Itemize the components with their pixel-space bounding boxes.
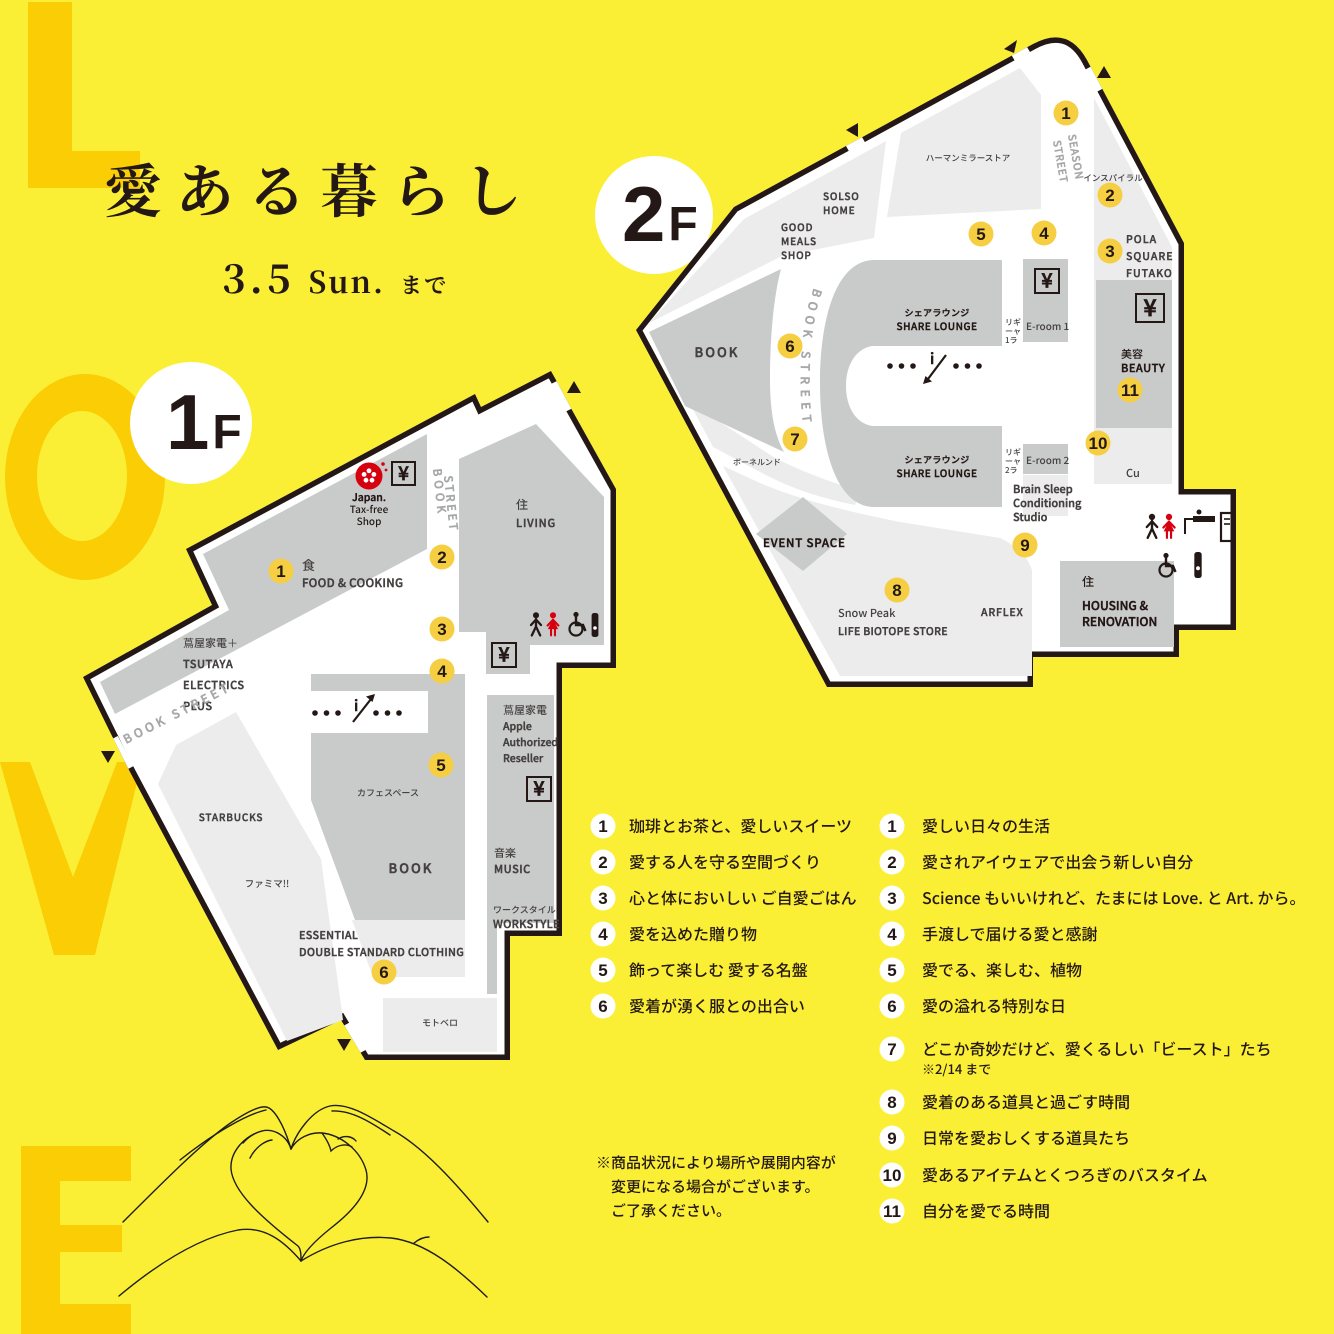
svg-text:音楽: 音楽 xyxy=(494,845,516,861)
svg-text:9: 9 xyxy=(1020,536,1029,555)
svg-text:i: i xyxy=(354,695,358,716)
svg-text:4: 4 xyxy=(598,925,608,944)
svg-text:Authorized: Authorized xyxy=(502,735,558,750)
svg-text:E-room 1: E-room 1 xyxy=(1026,318,1070,333)
svg-text:蔦屋家電＋: 蔦屋家電＋ xyxy=(183,635,238,651)
svg-text:8: 8 xyxy=(887,1093,896,1112)
svg-text:手渡しで届ける愛と感謝: 手渡しで届ける愛と感謝 xyxy=(922,921,1098,945)
svg-text:ご了承ください。: ご了承ください。 xyxy=(611,1200,731,1221)
svg-text:ボーネルンド: ボーネルンド xyxy=(733,457,781,468)
svg-text:HOME: HOME xyxy=(823,202,855,217)
svg-text:愛ある暮らし: 愛ある暮らし xyxy=(104,145,536,229)
svg-text:愛着が湧く服との出合い: 愛着が湧く服との出合い xyxy=(629,993,805,1017)
svg-text:Cu: Cu xyxy=(1126,465,1140,481)
svg-text:EVENT SPACE: EVENT SPACE xyxy=(763,535,846,551)
svg-text:6: 6 xyxy=(785,337,794,356)
svg-text:5: 5 xyxy=(436,756,445,775)
svg-text:10: 10 xyxy=(883,1166,902,1185)
svg-text:1: 1 xyxy=(1061,104,1070,123)
svg-text:SOLSO: SOLSO xyxy=(823,188,860,203)
svg-text:FUTAKO: FUTAKO xyxy=(1126,266,1173,281)
svg-text:心と体においしい ご自愛ごはん: 心と体においしい ご自愛ごはん xyxy=(629,885,857,909)
svg-text:1ラ: 1ラ xyxy=(1005,335,1018,346)
svg-text:珈琲とお茶と、愛しいスイーツ: 珈琲とお茶と、愛しいスイーツ xyxy=(629,813,852,837)
svg-text:8: 8 xyxy=(892,581,901,600)
svg-text:蔦屋家電: 蔦屋家電 xyxy=(503,702,547,718)
svg-text:MUSIC: MUSIC xyxy=(494,861,531,877)
svg-text:¥: ¥ xyxy=(397,459,409,486)
svg-text:ESSENTIAL: ESSENTIAL xyxy=(299,927,358,943)
svg-text:1: 1 xyxy=(276,562,285,581)
svg-text:Studio: Studio xyxy=(1013,509,1048,525)
svg-text:BOOK: BOOK xyxy=(695,342,740,361)
svg-text:3: 3 xyxy=(1105,242,1114,261)
svg-text:5: 5 xyxy=(976,225,985,244)
svg-text:ハーマンミラーストア: ハーマンミラーストア xyxy=(926,152,1011,164)
svg-text:Apple: Apple xyxy=(502,719,532,734)
svg-text:愛しい日々の生活: 愛しい日々の生活 xyxy=(922,813,1050,837)
svg-text:2ラ: 2ラ xyxy=(1005,465,1018,476)
svg-text:Shop: Shop xyxy=(357,513,382,528)
svg-text:MEALS: MEALS xyxy=(781,233,817,248)
svg-text:Snow Peak: Snow Peak xyxy=(838,605,896,621)
svg-text:3: 3 xyxy=(598,889,607,908)
svg-text:カフェスペース: カフェスペース xyxy=(357,786,419,799)
svg-text:DOUBLE STANDARD CLOTHING: DOUBLE STANDARD CLOTHING xyxy=(299,944,464,960)
svg-text:2: 2 xyxy=(887,853,896,872)
svg-text:愛でる、楽しむ、植物: 愛でる、楽しむ、植物 xyxy=(922,957,1082,981)
svg-text:2: 2 xyxy=(437,548,446,567)
svg-text:11: 11 xyxy=(1121,381,1139,400)
svg-text:1: 1 xyxy=(887,817,896,836)
svg-text:※商品状況により場所や展開内容が: ※商品状況により場所や展開内容が xyxy=(596,1152,836,1173)
svg-text:6: 6 xyxy=(379,963,388,982)
svg-text:どこか奇妙だけど、愛くるしい「ビースト」たち: どこか奇妙だけど、愛くるしい「ビースト」たち xyxy=(922,1036,1272,1060)
svg-text:変更になる場合がございます。: 変更になる場合がございます。 xyxy=(611,1176,820,1197)
svg-text:11: 11 xyxy=(883,1202,901,1221)
svg-text:BEAUTY: BEAUTY xyxy=(1121,360,1166,376)
svg-text:10: 10 xyxy=(1089,434,1108,453)
svg-text:FOOD & COOKING: FOOD & COOKING xyxy=(302,575,403,591)
svg-text:BOOK: BOOK xyxy=(389,858,434,877)
svg-text:2: 2 xyxy=(598,853,607,872)
svg-text:飾って楽しむ 愛する名盤: 飾って楽しむ 愛する名盤 xyxy=(629,957,808,981)
svg-text:ARFLEX: ARFLEX xyxy=(980,605,1024,620)
svg-text:愛の溢れる特別な日: 愛の溢れる特別な日 xyxy=(922,993,1066,1017)
svg-text:POLA: POLA xyxy=(1126,232,1157,247)
svg-text:SHARE LOUNGE: SHARE LOUNGE xyxy=(897,465,978,480)
svg-text:TSUTAYA: TSUTAYA xyxy=(183,656,234,672)
svg-text:9: 9 xyxy=(887,1129,896,1148)
svg-text:7: 7 xyxy=(887,1040,896,1059)
svg-text:WORKSTYLE: WORKSTYLE xyxy=(492,916,560,932)
svg-text:愛する人を守る空間づくり: 愛する人を守る空間づくり xyxy=(629,849,821,873)
svg-text:モトベロ: モトベロ xyxy=(422,1016,458,1029)
svg-text:日常を愛おしくする道具たち: 日常を愛おしくする道具たち xyxy=(922,1125,1130,1149)
svg-text:※2/14 まで: ※2/14 まで xyxy=(922,1059,991,1078)
svg-text:1: 1 xyxy=(598,817,607,836)
svg-text:愛されアイウェアで出会う新しい自分: 愛されアイウェアで出会う新しい自分 xyxy=(922,849,1193,873)
svg-text:HOUSING &: HOUSING & xyxy=(1082,597,1149,614)
svg-text:5: 5 xyxy=(887,961,896,980)
svg-text:Reseller: Reseller xyxy=(503,751,544,766)
svg-text:LIFE BIOTOPE STORE: LIFE BIOTOPE STORE xyxy=(838,624,948,639)
svg-text:SHARE LOUNGE: SHARE LOUNGE xyxy=(897,318,978,333)
svg-text:¥: ¥ xyxy=(497,639,510,668)
svg-text:4: 4 xyxy=(437,662,447,681)
svg-text:住: 住 xyxy=(1082,573,1094,590)
svg-text:6: 6 xyxy=(887,997,896,1016)
svg-text:6: 6 xyxy=(598,997,607,1016)
svg-text:¥: ¥ xyxy=(1142,289,1157,323)
svg-text:ワークスタイル: ワークスタイル xyxy=(493,903,556,916)
svg-text:E-room 2: E-room 2 xyxy=(1026,452,1070,467)
svg-text:5: 5 xyxy=(598,961,607,980)
svg-text:¥: ¥ xyxy=(1040,265,1053,294)
svg-text:GOOD: GOOD xyxy=(781,219,813,234)
svg-text:食: 食 xyxy=(302,555,315,574)
svg-text:SHOP: SHOP xyxy=(781,247,812,262)
svg-text:3: 3 xyxy=(437,620,446,639)
svg-text:4: 4 xyxy=(1039,224,1049,243)
svg-text:愛を込めた贈り物: 愛を込めた贈り物 xyxy=(629,921,757,945)
svg-text:STARBUCKS: STARBUCKS xyxy=(199,809,264,824)
svg-text:i: i xyxy=(930,348,934,369)
svg-text:RENOVATION: RENOVATION xyxy=(1082,613,1157,630)
svg-text:住: 住 xyxy=(516,496,528,513)
svg-text:愛着のある道具と過ごす時間: 愛着のある道具と過ごす時間 xyxy=(922,1089,1130,1113)
svg-text:LIVING: LIVING xyxy=(516,515,556,531)
svg-text:ファミマ!!: ファミマ!! xyxy=(245,876,290,890)
svg-text:SQUARE: SQUARE xyxy=(1126,249,1174,264)
svg-text:自分を愛でる時間: 自分を愛でる時間 xyxy=(922,1198,1050,1222)
svg-text:愛あるアイテムとくつろぎのバスタイム: 愛あるアイテムとくつろぎのバスタイム xyxy=(922,1162,1208,1186)
svg-text:2: 2 xyxy=(1105,186,1114,205)
svg-text:¥: ¥ xyxy=(532,773,545,802)
svg-text:インスパイラル: インスパイラル xyxy=(1083,172,1143,184)
svg-text:3: 3 xyxy=(887,889,896,908)
svg-text:7: 7 xyxy=(790,430,799,449)
svg-text:4: 4 xyxy=(887,925,897,944)
svg-text:Science もいいけれど、たまには Love. と Ar: Science もいいけれど、たまには Love. と Art. から。 xyxy=(922,885,1305,909)
